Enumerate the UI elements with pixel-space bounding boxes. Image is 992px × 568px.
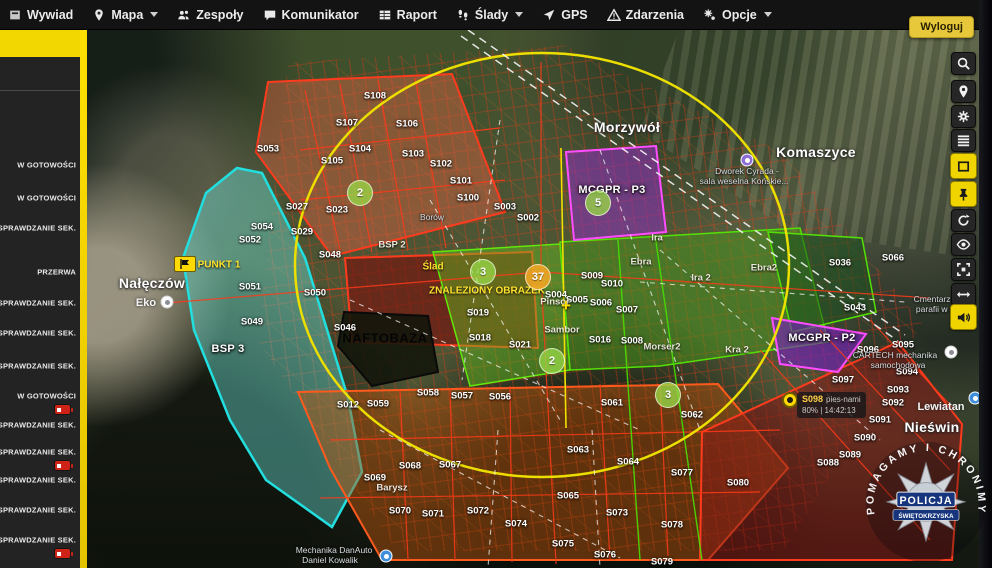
arrows-icon (956, 287, 971, 302)
table-icon (378, 8, 392, 22)
numbered-sector-marker[interactable]: 2 (539, 348, 565, 374)
menu-item-label: GPS (561, 8, 587, 22)
pin-icon (956, 84, 971, 99)
chevron-down-icon (150, 12, 158, 17)
menu-item-raport[interactable]: Raport (378, 8, 437, 22)
layers-icon (956, 133, 971, 148)
menu-item-gps[interactable]: GPS (542, 8, 587, 22)
visibility-button[interactable] (951, 233, 976, 256)
team-status-item[interactable]: W GOTOWOŚCI (17, 392, 76, 401)
layers-button[interactable] (951, 129, 976, 152)
battery-low-icon (55, 549, 70, 558)
settings-button[interactable] (951, 105, 976, 128)
numbered-sector-marker[interactable]: 37 (525, 264, 551, 290)
refresh-icon (956, 213, 971, 228)
steps-icon (456, 8, 470, 22)
gps-tracker-marker[interactable] (782, 392, 798, 408)
select-area-button[interactable] (950, 153, 977, 179)
top-menu-bar: WywiadMapaZespołyKomunikatorRaportŚladyG… (0, 0, 992, 30)
fit-bounds-button[interactable] (951, 258, 976, 281)
menu-item-label: Raport (397, 8, 437, 22)
menu-item-label: Zespoły (196, 8, 243, 22)
team-status-item[interactable]: SPRAWDZANIE SEK. (0, 506, 76, 515)
cursor-icon (542, 8, 556, 22)
team-status-item[interactable]: W GOTOWOŚCI (17, 194, 76, 203)
search-button[interactable] (951, 52, 976, 75)
tracker-tooltip: S098pies-nami 80% | 14:42:13 (797, 392, 866, 418)
flag-icon (179, 259, 191, 269)
numbered-sector-marker[interactable]: 2 (347, 180, 373, 206)
chevron-down-icon (764, 12, 772, 17)
panel-icon (8, 8, 22, 22)
team-status-item[interactable]: SPRAWDZANIE SEK. (0, 362, 76, 371)
last-position-cross-marker[interactable]: + (561, 296, 571, 316)
team-status-item[interactable]: SPRAWDZANIE SEK. (0, 476, 76, 485)
menu-item-zespoy[interactable]: Zespoły (177, 8, 243, 22)
sidebar-header-block (0, 30, 80, 57)
measure-button[interactable] (951, 283, 976, 306)
refresh-button[interactable] (951, 209, 976, 232)
numbered-sector-marker[interactable]: 3 (655, 382, 681, 408)
tracker-name: pies-nami (826, 395, 861, 404)
team-status-item[interactable]: SPRAWDZANIE SEK. (0, 448, 76, 457)
chevron-down-icon (515, 12, 523, 17)
eye-icon (956, 237, 971, 252)
team-status-sidebar: W GOTOWOŚCIW GOTOWOŚCISPRAWDZANIE SEK.PR… (0, 30, 80, 568)
poi-marker[interactable] (161, 296, 174, 309)
team-status-item[interactable]: SPRAWDZANIE SEK. (0, 224, 76, 233)
badge-org: POLICJA (899, 495, 952, 507)
pin-mode-button[interactable] (950, 181, 977, 207)
chat-icon (263, 8, 277, 22)
speaker-icon (956, 310, 971, 325)
poi-marker[interactable] (741, 154, 754, 167)
menu-item-zdarzenia[interactable]: Zdarzenia (607, 8, 684, 22)
pushpin-icon (956, 187, 971, 202)
menu-item-label: Wywiad (27, 8, 73, 22)
search-icon (956, 56, 971, 71)
point-flag-marker[interactable] (174, 256, 196, 272)
battery-low-icon (55, 461, 70, 470)
battery-low-icon (55, 405, 70, 414)
badge-region: ŚWIĘTOKRZYSKA (898, 511, 954, 520)
team-status-item[interactable]: SPRAWDZANIE SEK. (0, 421, 76, 430)
poi-marker[interactable] (380, 550, 393, 563)
menu-item-label: Zdarzenia (626, 8, 684, 22)
sound-button[interactable] (950, 304, 977, 330)
sidebar-divider (0, 90, 80, 91)
menu-item-label: Ślady (475, 8, 508, 22)
logout-button[interactable]: Wyloguj (909, 16, 974, 38)
map-edge-highlight (80, 30, 87, 568)
team-status-item[interactable]: PRZERWA (37, 268, 76, 277)
locate-button[interactable] (951, 80, 976, 103)
team-status-item[interactable]: SPRAWDZANIE SEK. (0, 299, 76, 308)
tracker-id: S098 (802, 394, 823, 404)
warning-icon (607, 8, 621, 22)
menu-item-lady[interactable]: Ślady (456, 8, 523, 22)
menu-item-label: Opcje (722, 8, 757, 22)
app-window: WywiadMapaZespołyKomunikatorRaportŚladyG… (0, 0, 992, 568)
numbered-sector-marker[interactable]: 5 (585, 190, 611, 216)
menu-item-komunikator[interactable]: Komunikator (263, 8, 359, 22)
crop-icon (956, 262, 971, 277)
police-badge-watermark: POLICJA ŚWIĘTOKRZYSKA POMAGAMY I CHRONIM… (862, 430, 990, 566)
rect-icon (956, 159, 971, 174)
menu-item-label: Komunikator (282, 8, 359, 22)
poi-marker[interactable] (945, 346, 958, 359)
menu-item-wywiad[interactable]: Wywiad (8, 8, 73, 22)
team-status-item[interactable]: SPRAWDZANIE SEK. (0, 329, 76, 338)
gear-icon (956, 109, 971, 124)
gears-icon (703, 8, 717, 22)
numbered-sector-marker[interactable]: 3 (470, 259, 496, 285)
team-status-item[interactable]: W GOTOWOŚCI (17, 161, 76, 170)
menu-item-mapa[interactable]: Mapa (92, 8, 158, 22)
pin-icon (92, 8, 106, 22)
people-icon (177, 8, 191, 22)
menu-item-opcje[interactable]: Opcje (703, 8, 772, 22)
tracker-status: 80% | 14:42:13 (802, 406, 861, 416)
menu-item-label: Mapa (111, 8, 143, 22)
team-status-item[interactable]: SPRAWDZANIE SEK. (0, 536, 76, 545)
